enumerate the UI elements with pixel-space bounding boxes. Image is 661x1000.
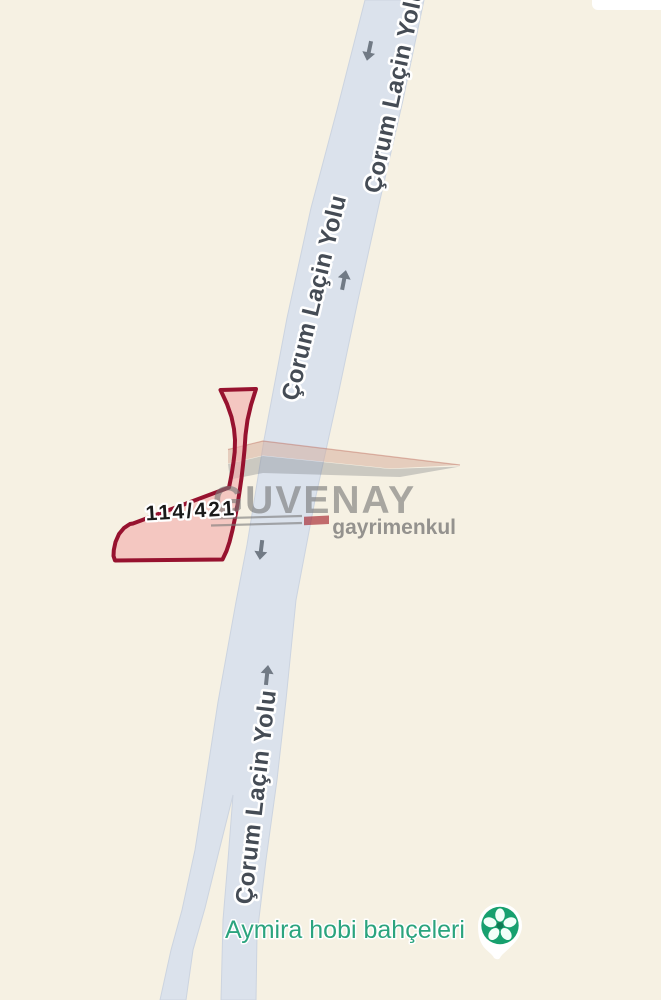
svg-text:Aymira hobi bahçeleri: Aymira hobi bahçeleri xyxy=(225,916,465,944)
svg-text:gayrimenkul: gayrimenkul xyxy=(332,516,456,539)
